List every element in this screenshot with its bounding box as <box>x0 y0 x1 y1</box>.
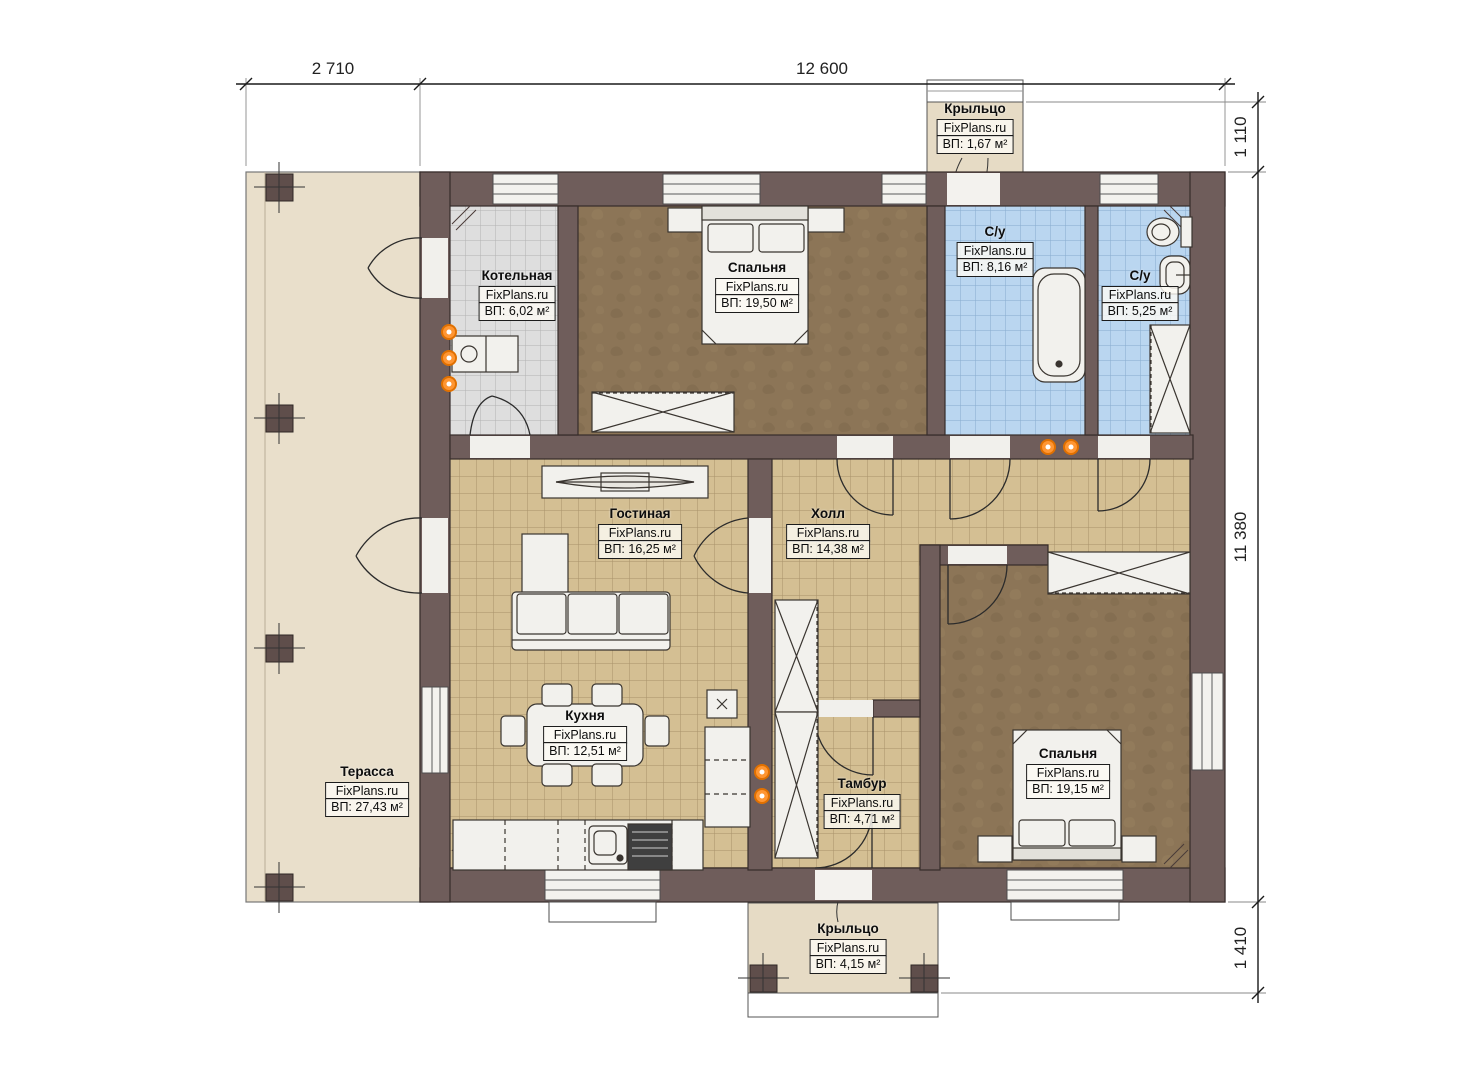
room-area: ВП: 19,15 м² <box>1026 780 1110 798</box>
brand-watermark: FixPlans.ru <box>325 782 409 800</box>
room-area: ВП: 6,02 м² <box>479 302 556 320</box>
room-name: Котельная <box>479 268 556 284</box>
brand-watermark: FixPlans.ru <box>786 524 870 542</box>
room-name: Тамбур <box>824 776 901 792</box>
room-label-bathroom-small: С/у FixPlans.ru ВП: 5,25 м² <box>1102 268 1179 321</box>
room-label-bedroom-top: Спальня FixPlans.ru ВП: 19,50 м² <box>715 260 799 313</box>
room-name: Спальня <box>1026 746 1110 762</box>
room-name: Холл <box>786 506 870 522</box>
dim-porch-bottom-depth: 1 410 <box>1231 927 1250 970</box>
dim-house-width: 12 600 <box>796 59 848 78</box>
room-area: ВП: 8,16 м² <box>957 258 1034 276</box>
floor-plan-drawing: 2 710 12 600 1 110 11 380 1 410 <box>0 0 1473 1080</box>
dim-terrace-width: 2 710 <box>312 59 355 78</box>
room-name: Крыльцо <box>810 921 887 937</box>
room-label-kitchen: Кухня FixPlans.ru ВП: 12,51 м² <box>543 708 627 761</box>
brand-watermark: FixPlans.ru <box>824 794 901 812</box>
room-area: ВП: 19,50 м² <box>715 294 799 312</box>
room-area: ВП: 5,25 м² <box>1102 302 1179 320</box>
dresser <box>592 392 734 432</box>
brand-watermark: FixPlans.ru <box>1102 286 1179 304</box>
room-name: С/у <box>1102 268 1179 284</box>
brand-watermark: FixPlans.ru <box>957 242 1034 260</box>
bath-closet <box>1150 325 1190 433</box>
dim-porch-top-depth: 1 110 <box>1231 116 1250 157</box>
room-label-hall: Холл FixPlans.ru ВП: 14,38 м² <box>786 506 870 559</box>
room-label-porch-top: Крыльцо FixPlans.ru ВП: 1,67 м² <box>937 101 1014 154</box>
tv-console <box>542 466 708 498</box>
brand-watermark: FixPlans.ru <box>598 524 682 542</box>
sofa <box>512 592 670 650</box>
room-label-bedroom-bottom: Спальня FixPlans.ru ВП: 19,15 м² <box>1026 746 1110 799</box>
brand-watermark: FixPlans.ru <box>715 278 799 296</box>
room-label-bathroom-large: С/у FixPlans.ru ВП: 8,16 м² <box>957 224 1034 277</box>
room-label-vestibule: Тамбур FixPlans.ru ВП: 4,71 м² <box>824 776 901 829</box>
room-area: ВП: 4,15 м² <box>810 955 887 973</box>
room-label-porch-bottom: Крыльцо FixPlans.ru ВП: 4,15 м² <box>810 921 887 974</box>
room-area: ВП: 14,38 м² <box>786 540 870 558</box>
room-area: ВП: 12,51 м² <box>543 742 627 760</box>
room-label-living-room: Гостиная FixPlans.ru ВП: 16,25 м² <box>598 506 682 559</box>
room-area: ВП: 27,43 м² <box>325 798 409 816</box>
brand-watermark: FixPlans.ru <box>1026 764 1110 782</box>
room-label-boiler: Котельная FixPlans.ru ВП: 6,02 м² <box>479 268 556 321</box>
brand-watermark: FixPlans.ru <box>543 726 627 744</box>
room-name: Крыльцо <box>937 101 1014 117</box>
brand-watermark: FixPlans.ru <box>937 119 1014 137</box>
brand-watermark: FixPlans.ru <box>810 939 887 957</box>
room-area: ВП: 4,71 м² <box>824 810 901 828</box>
hall-wardrobes <box>775 600 818 858</box>
room-label-terrace: Терасса FixPlans.ru ВП: 27,43 м² <box>325 764 409 817</box>
brand-watermark: FixPlans.ru <box>479 286 556 304</box>
room-name: Спальня <box>715 260 799 276</box>
room-name: Кухня <box>543 708 627 724</box>
room-name: Гостиная <box>598 506 682 522</box>
room-area: ВП: 1,67 м² <box>937 135 1014 153</box>
bedroom2-wardrobe <box>1048 552 1190 594</box>
room-name: С/у <box>957 224 1034 240</box>
room-area: ВП: 16,25 м² <box>598 540 682 558</box>
room-name: Терасса <box>325 764 409 780</box>
floor-plan-canvas: 2 710 12 600 1 110 11 380 1 410 Котельна… <box>0 0 1473 1080</box>
dim-house-depth: 11 380 <box>1231 512 1250 563</box>
